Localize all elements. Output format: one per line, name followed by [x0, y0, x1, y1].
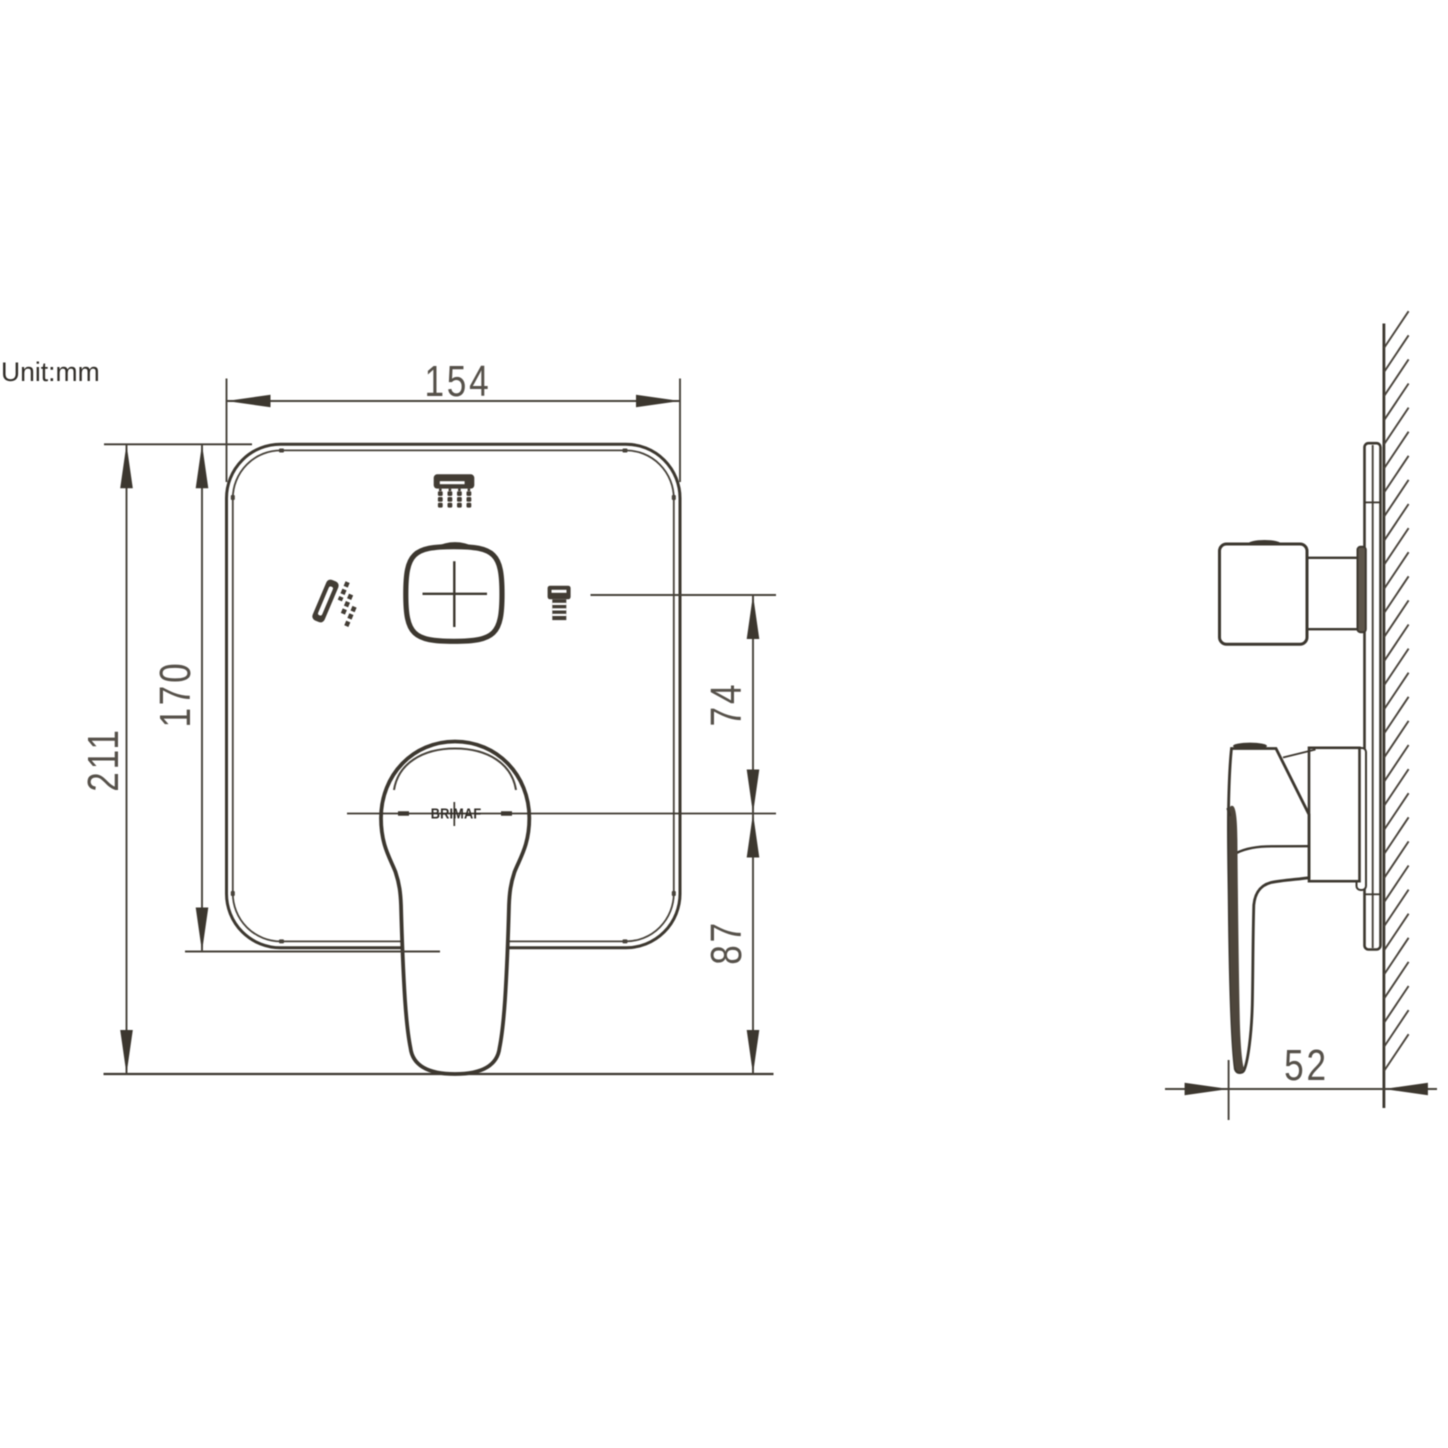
- svg-text:170: 170: [151, 660, 200, 727]
- svg-text:Unit:mm: Unit:mm: [1, 357, 100, 387]
- svg-text:74: 74: [702, 682, 751, 727]
- svg-text:87: 87: [702, 920, 751, 965]
- svg-text:BRIMAF: BRIMAF: [431, 804, 482, 821]
- svg-text:211: 211: [79, 727, 128, 792]
- svg-text:52: 52: [1284, 1041, 1329, 1090]
- svg-text:154: 154: [424, 357, 491, 406]
